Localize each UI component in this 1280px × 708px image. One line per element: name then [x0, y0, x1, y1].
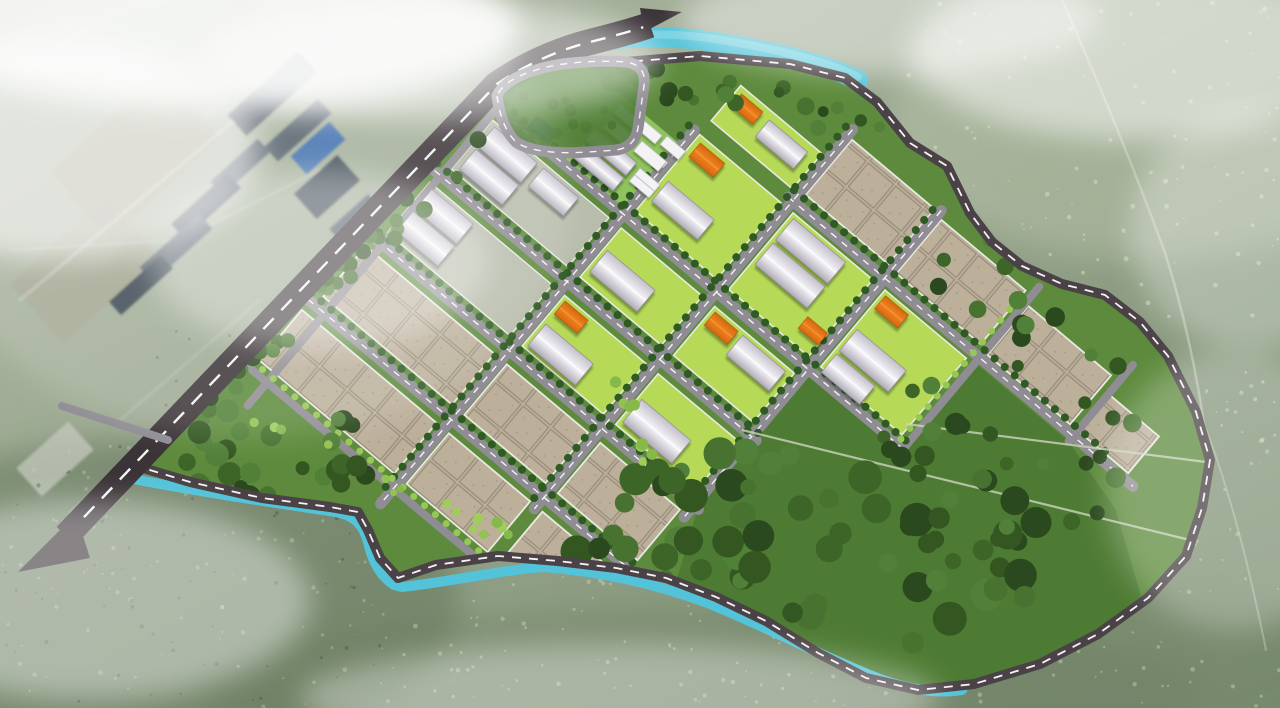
aerial-masterplan-render: Aerial master-plan rendering of an indus…: [0, 0, 1280, 708]
scene: Aerial master-plan rendering of an indus…: [0, 0, 1280, 708]
